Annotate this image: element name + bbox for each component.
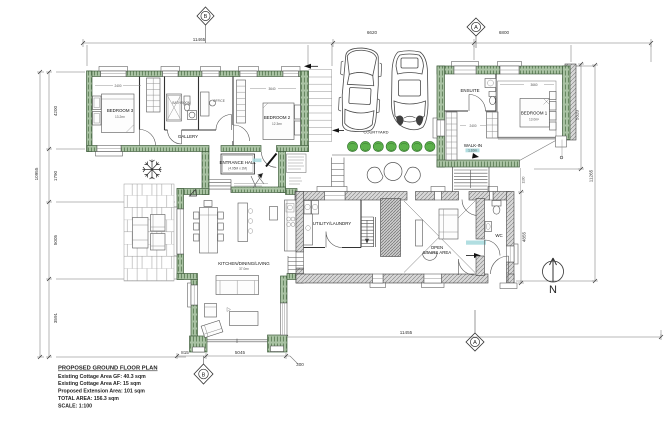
svg-text:2400: 2400: [469, 124, 476, 128]
svg-text:TOTAL AREA: 156.3 sqm: TOTAL AREA: 156.3 sqm: [58, 396, 119, 402]
svg-text:6620: 6620: [367, 30, 378, 35]
svg-text:13.2m²: 13.2m²: [115, 115, 125, 119]
svg-text:Proposed Extension Area: 101 s: Proposed Extension Area: 101 sqm: [58, 389, 145, 395]
svg-text:ENSUITE: ENSUITE: [460, 88, 479, 93]
svg-text:Existing Cottage Area GF: 40.3: Existing Cottage Area GF: 40.3 sqm: [58, 374, 146, 380]
svg-text:COURTYARD: COURTYARD: [364, 130, 389, 135]
svg-text:BEDROOM 1: BEDROOM 1: [521, 111, 548, 116]
svg-text:1100: 1100: [522, 176, 526, 183]
svg-text:5045: 5045: [235, 350, 246, 355]
svg-text:BATHROOM: BATHROOM: [172, 101, 191, 105]
svg-text:OFFICE: OFFICE: [213, 99, 225, 103]
svg-text:3591: 3591: [53, 312, 58, 323]
svg-text:WC: WC: [495, 233, 502, 238]
svg-text:4855: 4855: [522, 231, 527, 242]
svg-text:STAIRS AREA: STAIRS AREA: [423, 250, 452, 255]
svg-text:Existing Cottage Area AF: 15 s: Existing Cottage Area AF: 15 sqm: [58, 381, 141, 387]
svg-text:B: B: [202, 372, 206, 378]
svg-text:6800: 6800: [499, 30, 510, 35]
svg-text:GALLERY: GALLERY: [178, 134, 198, 139]
svg-text:13.0m²: 13.0m²: [529, 118, 539, 122]
svg-text:11465: 11465: [193, 37, 206, 42]
svg-text:2400: 2400: [114, 84, 121, 88]
svg-text:BEDROOM 3: BEDROOM 3: [107, 108, 134, 113]
svg-text:5005: 5005: [53, 234, 58, 245]
svg-text:A: A: [473, 340, 477, 346]
svg-text:B: B: [204, 14, 208, 20]
svg-text:11455: 11455: [400, 330, 413, 335]
svg-text:UTILITY/LAUNDRY: UTILITY/LAUNDRY: [313, 221, 352, 226]
svg-text:1.10m: 1.10m: [468, 149, 477, 153]
svg-text:(4.95M x 2M): (4.95M x 2M): [228, 167, 247, 171]
svg-text:3660: 3660: [530, 83, 537, 87]
svg-text:37.0m²: 37.0m²: [239, 267, 249, 271]
svg-text:WALK-IN: WALK-IN: [464, 143, 482, 148]
svg-text:N: N: [549, 284, 557, 296]
svg-text:ENTRANCE HALL: ENTRANCE HALL: [220, 160, 257, 165]
svg-text:10955: 10955: [34, 167, 39, 180]
svg-text:KITCHEN/DINING/LIVING: KITCHEN/DINING/LIVING: [218, 261, 270, 266]
svg-text:BEDROOM 2: BEDROOM 2: [264, 115, 291, 120]
svg-text:11265: 11265: [589, 169, 594, 182]
svg-text:1790: 1790: [53, 170, 58, 181]
svg-text:12.3m²: 12.3m²: [272, 122, 282, 126]
svg-text:SCALE: 1:100: SCALE: 1:100: [58, 403, 92, 409]
svg-text:3640: 3640: [268, 87, 275, 91]
svg-text:A: A: [474, 25, 478, 31]
svg-text:4200: 4200: [53, 105, 58, 116]
svg-text:PROPOSED GROUND FLOOR PLAN: PROPOSED GROUND FLOOR PLAN: [58, 366, 158, 372]
svg-text:300: 300: [296, 362, 304, 367]
svg-text:815: 815: [181, 350, 189, 355]
